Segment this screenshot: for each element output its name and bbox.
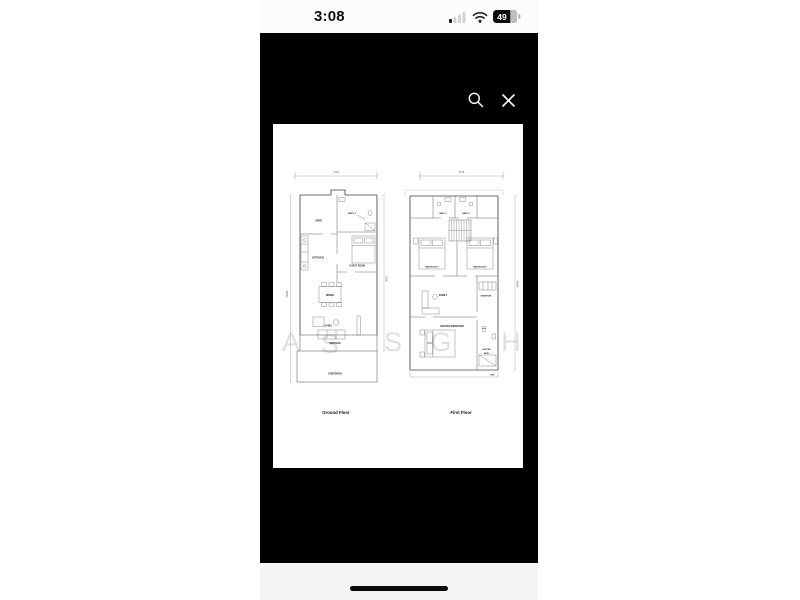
bedroom2-bed	[467, 238, 498, 269]
room-label-masterbath-1: MASTER	[483, 348, 492, 351]
battery-indicator: 49	[493, 10, 521, 23]
close-icon	[501, 93, 516, 108]
watermark-letter: G	[430, 327, 451, 357]
room-label-terrace: TERRACE	[329, 342, 341, 345]
home-indicator[interactable]	[350, 586, 448, 591]
first-bottom-band	[410, 370, 498, 377]
room-label-wardrobe: WARDROBE	[481, 295, 492, 298]
first-floor-plan: 4715 12040	[405, 170, 520, 415]
kitchen-counter	[301, 236, 308, 270]
room-label-living: LIVING	[324, 325, 332, 328]
room-label-bath3: BATH 3	[439, 212, 447, 215]
first-roof-offset	[405, 190, 503, 196]
battery-percent: 49	[497, 12, 507, 22]
guest-bed	[352, 236, 375, 263]
room-label-bath2: BATH 2	[462, 212, 470, 215]
close-button[interactable]	[495, 87, 521, 113]
status-bar: 3:08 49	[260, 0, 538, 33]
room-label-dining: DINING	[326, 294, 335, 297]
room-label-void: VOID	[490, 374, 495, 376]
ground-dim-top: 4715	[333, 170, 339, 174]
status-time: 3:08	[314, 8, 345, 25]
image-viewer: A S S G H 4715 12040 3925	[260, 33, 538, 563]
zoom-button[interactable]	[463, 87, 489, 113]
room-label-bath: BATH 3	[348, 212, 357, 215]
room-label-bedroom2: BEDROOM 2	[473, 267, 487, 269]
ground-dim-right: 3925	[385, 276, 389, 282]
phone-screen: 3:08 49	[260, 0, 538, 600]
room-label-guest: GUEST ROOM	[349, 266, 365, 268]
room-label-master: MASTER BEDROOM	[440, 325, 463, 328]
ground-outer-walls	[300, 190, 377, 335]
first-dim-top: 4715	[459, 170, 465, 174]
wardrobe	[479, 282, 496, 290]
ground-interior-walls	[300, 195, 377, 282]
family-sofa	[422, 291, 439, 314]
watermark-letter: A	[282, 327, 300, 357]
ground-floor-title: Ground Floor	[322, 410, 350, 415]
status-icons: 49	[449, 10, 521, 23]
bottom-bar	[260, 563, 538, 600]
room-label-bedroom3: BEDROOM 3	[425, 267, 439, 269]
ground-bath-fixtures	[339, 198, 375, 231]
first-floor-title: First Floor	[450, 410, 472, 415]
magnifier-icon	[467, 91, 485, 109]
bedroom3-bed	[414, 238, 446, 269]
floorplan-image[interactable]: A S S G H 4715 12040 3925	[273, 124, 523, 468]
wifi-icon	[472, 11, 488, 23]
master-bath-fixtures	[479, 327, 496, 366]
ground-dim-left: 12040	[285, 290, 289, 298]
watermark-letter: H	[501, 327, 521, 357]
room-label-kitchen: KITCHEN	[312, 256, 324, 260]
cellular-signal-icon	[449, 11, 467, 23]
room-label-carporch: CARPORCH	[328, 373, 342, 376]
ground-floor-plan: 4715 12040 3925	[285, 170, 389, 415]
watermark-letter: S	[384, 327, 402, 357]
room-label-yard: YARD	[315, 219, 322, 223]
floorplan-drawing: A S S G H 4715 12040 3925	[273, 124, 523, 468]
first-dim-right: 12040	[516, 280, 520, 288]
room-label-masterbath-2: BATH	[484, 352, 490, 355]
room-label-family: FAMILY	[439, 294, 448, 297]
